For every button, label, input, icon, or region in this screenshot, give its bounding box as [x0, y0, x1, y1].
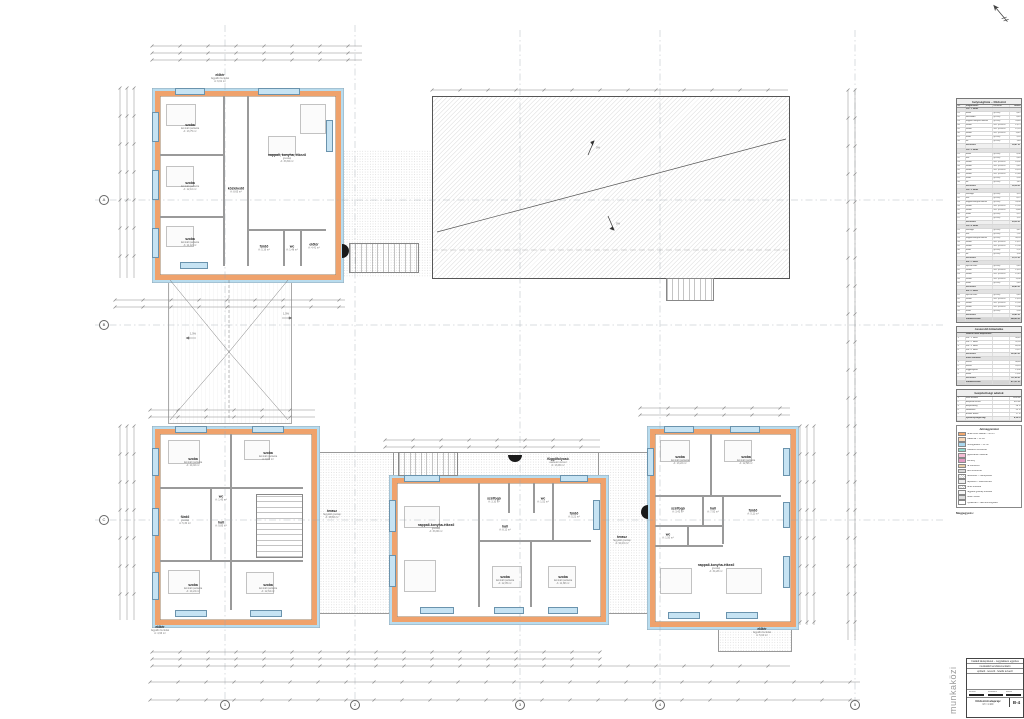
room-label: szobalaminált parkettaA: 13,75 m² — [181, 123, 199, 134]
stair-sw — [256, 494, 303, 558]
legend-item: beton felület — [958, 495, 1020, 500]
legend-swatch — [958, 458, 966, 463]
room-label: wcA: 1,52 m² — [537, 496, 549, 503]
legend-swatch — [958, 469, 966, 474]
legend-item: tetőfelület – cserépfedés — [958, 474, 1020, 479]
legend-swatch — [958, 453, 966, 458]
legend-item: gipszkarton előtétfal — [958, 453, 1020, 458]
stair-sc — [398, 452, 458, 476]
grid-bubble-col: 3 — [515, 700, 525, 710]
sheet-number: B-4 — [1009, 698, 1023, 707]
walkway-label: függőfolyosóvasbeton lemezA: 13,96 m² — [547, 457, 568, 468]
room-label: nappali-konyha-étkezőgreslapA: 34,28 m² — [698, 563, 735, 574]
legend-item: acél szerkezet — [958, 469, 1020, 474]
legend-swatch — [958, 474, 966, 479]
room-label: szobalaminált parkettaA: 11,88 m² — [554, 575, 572, 586]
table-row: mindösszesen: 471,51 m² — [957, 381, 1021, 385]
room-label: szobalaminált parkettaA: 14,24 m² — [184, 583, 202, 594]
porch-label: előtérfagyálló burkolatA: 6,61 m² — [211, 73, 229, 84]
legend-swatch — [958, 485, 966, 490]
porch-label: előtérfagyálló burkolatA: 5,04 m² — [753, 627, 771, 638]
legend-item: vasbeton szerkezet — [958, 448, 1020, 453]
legend-swatch — [958, 442, 966, 447]
legend-swatch — [958, 448, 966, 453]
legend-swatch — [958, 490, 966, 495]
legend-swatch — [958, 432, 966, 437]
room-label: fürdőA: 5,11 m² — [747, 508, 758, 515]
legend-item: válaszfal – 10 cm — [958, 437, 1020, 442]
site-data-table: beépítettségi adatok 1.telek területe 15… — [956, 389, 1022, 421]
exterior-stair-north — [666, 278, 714, 301]
title-block: Családi lakóépületek – négylakásos együt… — [966, 658, 1024, 718]
room-label: szélfogóA: 3,42 m² — [671, 506, 685, 513]
room-label: szobalaminált parkettaA: 11,42 m² — [181, 237, 199, 248]
grid-bubble-col: 1 — [220, 700, 230, 710]
legend-item: fagyálló greslap burkolat — [958, 490, 1020, 495]
terrace-label: teraszfagyálló greslapA: 48,60 m² — [323, 509, 341, 520]
room-label: szobalaminált parkettaA: 9,81 m² — [259, 451, 277, 462]
legend-swatch — [958, 479, 966, 484]
roof-plan-area — [432, 96, 790, 279]
slope-label: 1,5% — [283, 312, 289, 315]
summary-table: összesítő kimutatás lakások nettó alapte… — [956, 326, 1022, 387]
grid-bubble-col: 5 — [850, 700, 860, 710]
table-row: mindösszesen: 540,65 m² — [957, 318, 1021, 322]
legend-item: hőszigetelés – 15 cm — [958, 442, 1020, 447]
plan-name: földszinti alaprajz M = 1:100 — [967, 698, 1009, 707]
grid-bubble-row: C — [99, 515, 109, 525]
room-label: szélfogóA: 3,10 m² — [487, 496, 501, 503]
title-block-body — [967, 674, 1023, 690]
legend-item: fa szerkezet — [958, 464, 1020, 469]
slope-label: 1,5% — [190, 332, 196, 335]
grid-bubble-row: A — [99, 195, 109, 205]
room-label: közlekedőA: 8,65 m² — [228, 186, 244, 193]
room-label: wcA: 1,50 m² — [662, 532, 674, 539]
porch-label: előtérfagyálló burkolatA: 4,96 m² — [151, 625, 169, 636]
notes-title: Megjegyzés: — [956, 511, 1022, 515]
room-label: wcA: 1,48 m² — [286, 244, 298, 251]
grid-bubble-col: 2 — [350, 700, 360, 710]
legend: Jelmagyarázat teherhordó falazat – 30 cm… — [956, 425, 1022, 508]
legend-swatch — [958, 500, 966, 505]
legend-item: kémény — [958, 458, 1020, 463]
north-arrow-icon — [991, 3, 1009, 23]
legend-swatch — [958, 495, 966, 500]
legend-swatch — [958, 464, 966, 469]
room-label: szobalaminált parkettaA: 14,02 m² — [184, 457, 202, 468]
floor-plan-sheet: 1,5% 1,5% szobalaminált parkettaA: 13,75… — [0, 0, 1024, 719]
table-row: építménymagasság: 4,50 m — [957, 417, 1021, 421]
room-label: szobalaminált parkettaA: 13,22 m² — [671, 455, 689, 466]
room-label: nappali-konyha-étkezőgreslapA: 33,96 m² — [418, 523, 455, 534]
legend-item: lapostető – kavicsterítés — [958, 479, 1020, 484]
grid-bubble-row: B — [99, 320, 109, 330]
room-label: fürdőA: 5,21 m² — [568, 511, 580, 518]
connector-stair — [349, 243, 419, 273]
grid-bubble-col: 4 — [655, 700, 665, 710]
room-label: fürdőgreslapA: 5,30 m² — [179, 515, 191, 526]
room-label: hallA: 9,85 m² — [215, 520, 227, 527]
roof-slope-label: 5% — [596, 146, 600, 149]
room-label: wcA: 1,45 m² — [215, 494, 227, 501]
courtyard-roof-area — [168, 278, 292, 424]
terrace-label: teraszfagyálló greslapA: 24,10 m² — [613, 535, 631, 546]
room-label: szobalaminált parkettaA: 12,10 m² — [181, 181, 199, 192]
room-label: szobalaminált parkettaA: 12,58 m² — [737, 455, 755, 466]
room-label: szobalaminált parkettaA: 12,64 m² — [259, 583, 277, 594]
sidebar: helyiséglista – földszint sz. megnevezés… — [956, 98, 1022, 518]
room-label: hallA: 7,92 m² — [707, 506, 719, 513]
room-label: hallA: 8,12 m² — [499, 524, 511, 531]
legend-item: nyílászáró – lásd konszignáció — [958, 500, 1020, 505]
legend-item: térkő burkolat — [958, 485, 1020, 490]
room-label: fürdőA: 5,16 m² — [258, 244, 270, 251]
notes-block: Megjegyzés: — [956, 511, 1022, 515]
room-schedule-table: helyiséglista – földszint sz. megnevezés… — [956, 98, 1022, 323]
legend-swatch — [958, 437, 966, 442]
work-in-progress-watermark: munkaközi — [948, 660, 960, 716]
room-label: előtérA: 4,41 m² — [308, 242, 320, 249]
room-label: szobalaminált parkettaA: 12,05 m² — [496, 575, 514, 586]
legend-title: Jelmagyarázat — [958, 427, 1020, 431]
signatures: tervező munkatárs ellenőr — [967, 690, 1023, 698]
room-label: nappali, konyha, étkezőgreslapA: 33,84 m… — [268, 153, 306, 164]
legend-item: teherhordó falazat – 30 cm — [958, 432, 1020, 437]
roof-slope-label: 5% — [616, 222, 620, 225]
